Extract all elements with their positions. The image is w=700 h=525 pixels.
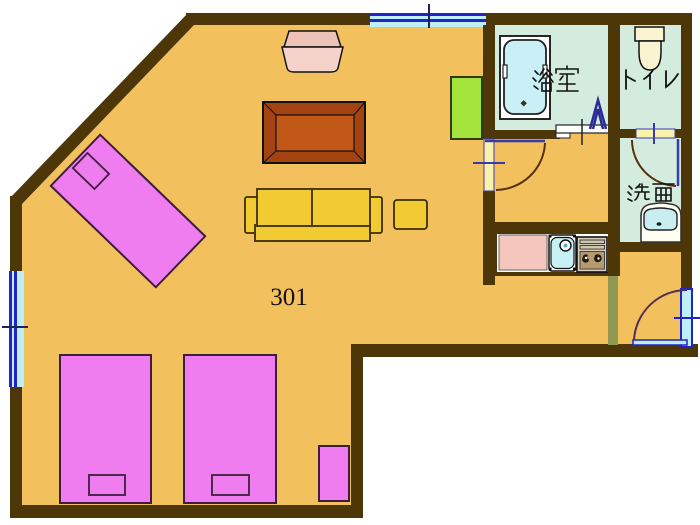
svg-text:301: 301 (270, 284, 308, 311)
